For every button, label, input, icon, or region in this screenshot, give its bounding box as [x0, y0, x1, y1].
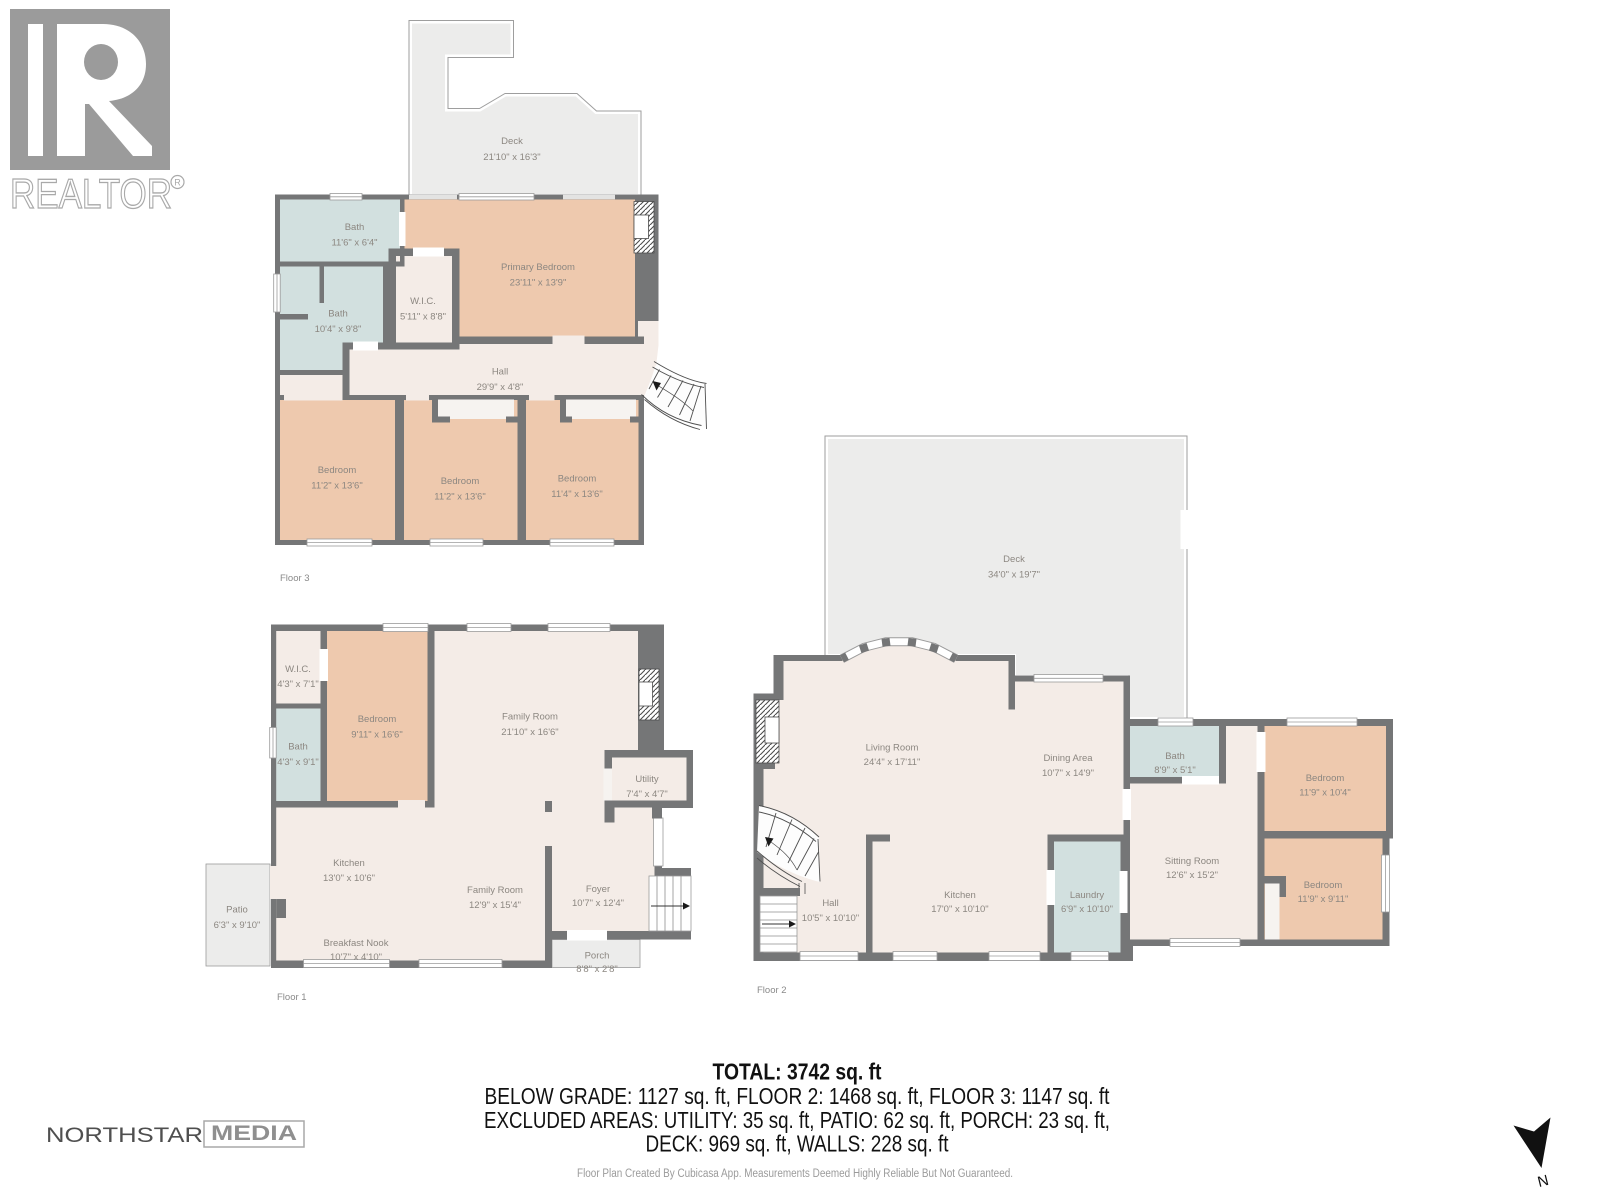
svg-text:Bedroom: Bedroom: [1304, 880, 1343, 891]
svg-text:NORTHSTAR: NORTHSTAR: [46, 1124, 203, 1147]
svg-text:8'8" x 2'8": 8'8" x 2'8": [576, 964, 618, 975]
svg-text:Utility: Utility: [635, 774, 658, 785]
svg-text:23'11" x 13'9": 23'11" x 13'9": [510, 278, 567, 289]
svg-text:Primary Bedroom: Primary Bedroom: [501, 262, 575, 273]
svg-text:Bedroom: Bedroom: [558, 474, 597, 485]
svg-text:Kitchen: Kitchen: [944, 890, 976, 901]
svg-text:Living Room: Living Room: [866, 743, 919, 754]
svg-text:Kitchen: Kitchen: [333, 858, 365, 869]
svg-text:21'10" x 16'6": 21'10" x 16'6": [501, 727, 558, 738]
svg-text:Floor 2: Floor 2: [757, 985, 787, 996]
svg-text:29'9" x 4'8": 29'9" x 4'8": [477, 382, 524, 393]
svg-text:MEDIA: MEDIA: [211, 1122, 297, 1145]
svg-text:Floor Plan Created By Cubicasa: Floor Plan Created By Cubicasa App. Meas…: [577, 1168, 1013, 1180]
svg-text:7'4" x 4'7": 7'4" x 4'7": [626, 789, 668, 800]
svg-text:24'4" x 17'11": 24'4" x 17'11": [864, 757, 921, 768]
svg-text:Bedroom: Bedroom: [1306, 773, 1345, 784]
svg-text:Bath: Bath: [345, 222, 365, 233]
svg-text:Bedroom: Bedroom: [441, 476, 480, 487]
svg-text:Hall: Hall: [492, 367, 508, 378]
svg-text:Bedroom: Bedroom: [318, 465, 357, 476]
svg-text:10'7" x 4'10": 10'7" x 4'10": [330, 952, 382, 963]
svg-text:EXCLUDED AREAS: UTILITY: 35 sq: EXCLUDED AREAS: UTILITY: 35 sq. ft, PATI…: [484, 1107, 1110, 1133]
svg-text:13'0" x 10'6": 13'0" x 10'6": [323, 873, 375, 884]
svg-text:12'6" x 15'2": 12'6" x 15'2": [1166, 870, 1218, 881]
svg-text:Deck: Deck: [1003, 554, 1025, 565]
svg-text:4'3" x 9'1": 4'3" x 9'1": [277, 757, 319, 768]
svg-text:11'9" x 9'11": 11'9" x 9'11": [1298, 894, 1349, 905]
svg-text:10'7" x 12'4": 10'7" x 12'4": [572, 898, 624, 909]
svg-text:34'0" x 19'7": 34'0" x 19'7": [988, 570, 1040, 581]
svg-text:Foyer: Foyer: [586, 884, 610, 895]
svg-text:DECK: 969 sq. ft, WALLS: 228 s: DECK: 969 sq. ft, WALLS: 228 sq. ft: [646, 1131, 949, 1157]
svg-text:Dining Area: Dining Area: [1043, 753, 1093, 764]
svg-text:BELOW GRADE: 1127 sq. ft, FLOO: BELOW GRADE: 1127 sq. ft, FLOOR 2: 1468 …: [485, 1083, 1110, 1109]
svg-text:21'10" x 16'3": 21'10" x 16'3": [483, 152, 540, 163]
svg-text:11'9" x 10'4": 11'9" x 10'4": [1299, 788, 1350, 799]
svg-text:Breakfast Nook: Breakfast Nook: [324, 938, 389, 949]
svg-text:6'3" x 9'10": 6'3" x 9'10": [214, 920, 261, 931]
svg-text:Hall: Hall: [822, 898, 838, 909]
svg-text:Porch: Porch: [585, 951, 610, 962]
svg-text:Bath: Bath: [328, 309, 348, 320]
svg-text:Family Room: Family Room: [502, 712, 558, 723]
svg-text:REALTOR: REALTOR: [10, 170, 172, 217]
svg-text:6'9" x 10'10": 6'9" x 10'10": [1061, 904, 1113, 915]
svg-text:R: R: [174, 178, 181, 188]
svg-text:Bedroom: Bedroom: [358, 714, 397, 725]
svg-text:W.I.C.: W.I.C.: [285, 664, 311, 675]
svg-text:11'2" x 13'6": 11'2" x 13'6": [434, 492, 485, 503]
svg-text:Sitting Room: Sitting Room: [1165, 856, 1219, 867]
svg-text:9'11" x 16'6": 9'11" x 16'6": [351, 730, 402, 741]
svg-text:Laundry: Laundry: [1070, 890, 1105, 901]
svg-text:17'0" x 10'10": 17'0" x 10'10": [931, 904, 988, 915]
svg-text:10'7" x 14'9": 10'7" x 14'9": [1042, 768, 1094, 779]
svg-text:12'9" x 15'4": 12'9" x 15'4": [469, 900, 521, 911]
svg-text:Deck: Deck: [501, 136, 523, 147]
svg-text:Family Room: Family Room: [467, 885, 523, 896]
svg-text:4'3" x 7'1": 4'3" x 7'1": [277, 679, 319, 690]
svg-text:Patio: Patio: [226, 905, 248, 916]
svg-text:W.I.C.: W.I.C.: [410, 296, 436, 307]
svg-text:Floor 1: Floor 1: [277, 992, 307, 1003]
svg-text:Bath: Bath: [1165, 751, 1185, 762]
svg-text:Bath: Bath: [288, 742, 308, 753]
svg-text:11'4" x 13'6": 11'4" x 13'6": [551, 489, 602, 500]
svg-text:5'11" x 8'8": 5'11" x 8'8": [400, 312, 446, 323]
svg-text:11'6" x 6'4": 11'6" x 6'4": [331, 238, 377, 249]
svg-text:10'5" x 10'10": 10'5" x 10'10": [802, 913, 859, 924]
svg-text:TOTAL: 3742 sq. ft: TOTAL: 3742 sq. ft: [713, 1059, 882, 1085]
svg-text:10'4" x 9'8": 10'4" x 9'8": [315, 324, 362, 335]
svg-text:8'9" x 5'1": 8'9" x 5'1": [1154, 765, 1196, 776]
svg-text:Floor 3: Floor 3: [280, 573, 310, 584]
svg-text:11'2" x 13'6": 11'2" x 13'6": [311, 481, 362, 492]
